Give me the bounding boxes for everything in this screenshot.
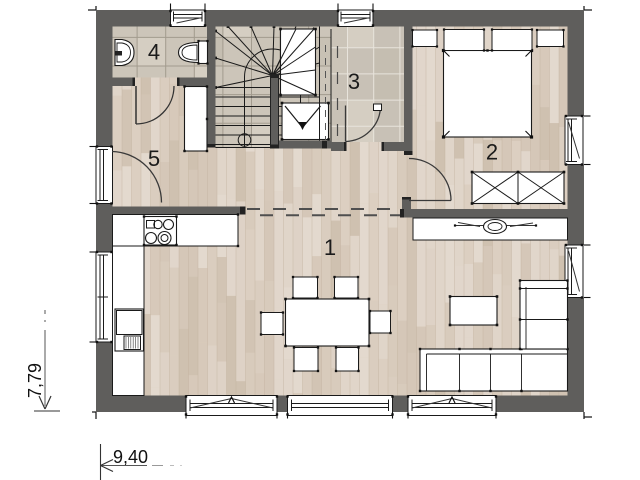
svg-text:5: 5 (148, 146, 160, 171)
svg-text:2: 2 (486, 140, 498, 165)
svg-text:1: 1 (324, 235, 336, 260)
svg-text:3: 3 (348, 69, 360, 94)
svg-text:4: 4 (148, 40, 160, 65)
svg-text:7,79: 7,79 (25, 363, 45, 398)
svg-text:9,40: 9,40 (113, 447, 148, 467)
